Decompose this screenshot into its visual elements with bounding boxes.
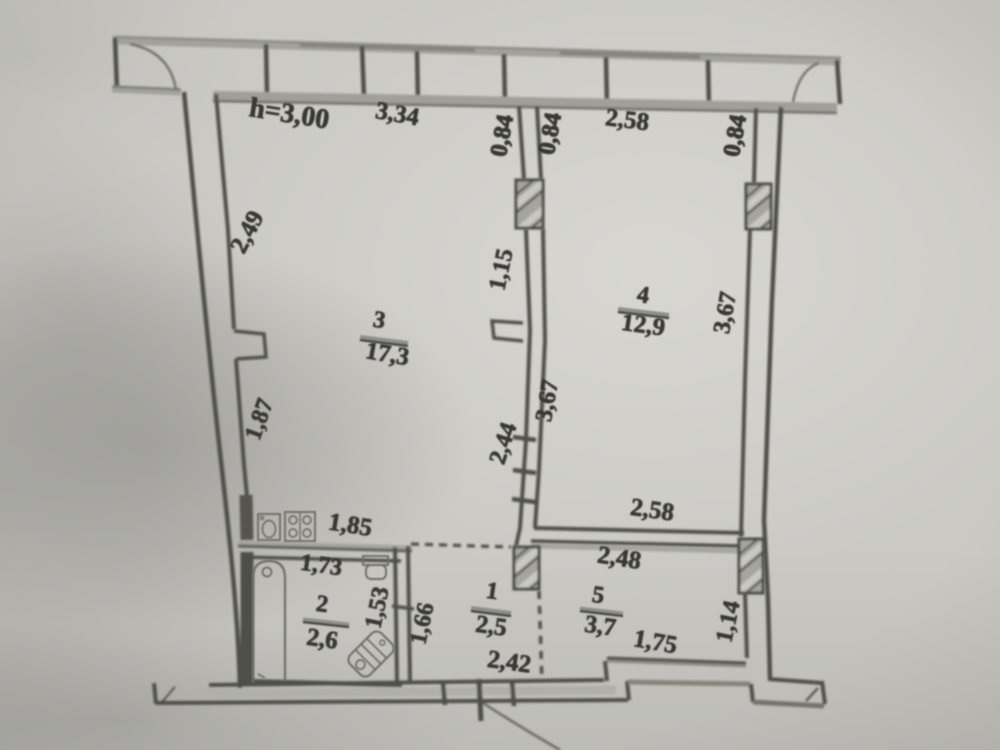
svg-text:2,58: 2,58: [604, 104, 651, 136]
svg-text:2,6: 2,6: [305, 624, 340, 655]
